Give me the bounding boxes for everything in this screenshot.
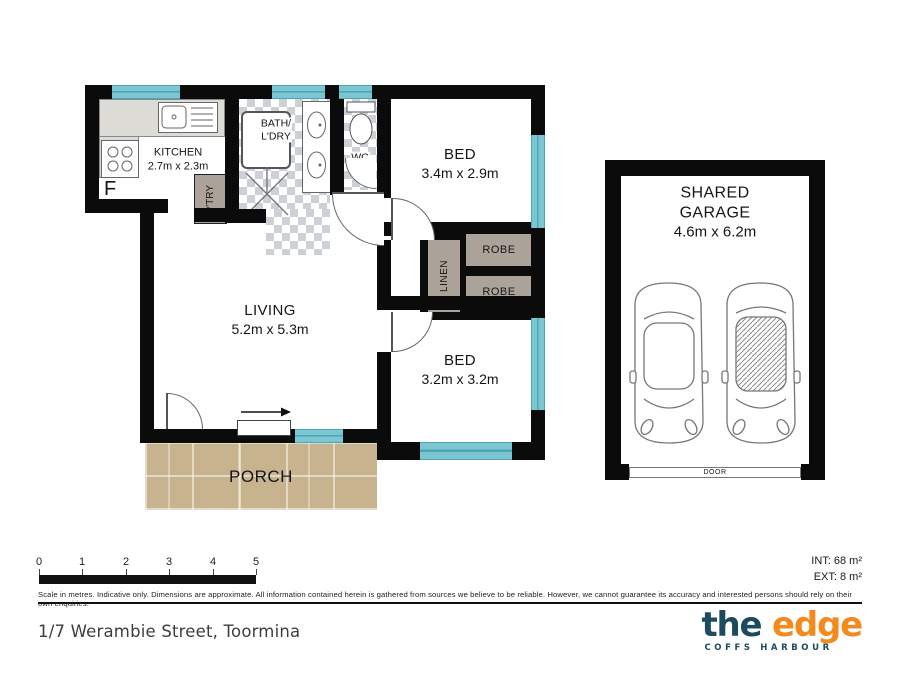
wall-segment <box>85 85 99 213</box>
window-glass <box>420 442 512 460</box>
scale-tick-label: 3 <box>166 556 172 568</box>
scale-tick-mark <box>256 569 257 575</box>
entry-door-leaf <box>166 393 168 429</box>
agency-logo: the edge COFFS HARBOUR <box>701 608 862 653</box>
wall-segment <box>330 85 344 195</box>
area-summary: INT: 68 m² EXT: 8 m² <box>811 554 862 586</box>
wall-segment <box>605 160 825 176</box>
bed1-door-swing <box>393 198 435 240</box>
wall-segment <box>377 352 391 443</box>
robe-cupboard: ROBE <box>466 234 532 266</box>
wall-segment <box>225 209 266 223</box>
cars-top-view-icon <box>627 277 805 449</box>
window-glass <box>272 85 325 99</box>
entry-door-swing <box>167 393 203 429</box>
garage-door: DOOR <box>629 467 801 478</box>
linen-label: LINEN <box>439 260 450 292</box>
wall-segment <box>801 464 825 480</box>
floor-plan-page: F P'TRY BATH/ L'DRY WC <box>0 0 900 675</box>
wall-segment <box>85 199 168 213</box>
kitchen-label: KITCHEN 2.7m x 2.3m <box>148 146 209 174</box>
wall-segment <box>225 85 239 222</box>
porch-area: PORCH <box>145 443 377 510</box>
scale-tick-label: 5 <box>253 556 259 568</box>
logo-word-edge: edge <box>772 605 862 645</box>
bed2-label: BED 3.2m x 3.2m <box>421 352 498 388</box>
bed2-door-leaf <box>391 312 393 352</box>
scale-tick-label: 1 <box>79 556 85 568</box>
agency-logo-wordmark: the edge <box>701 608 862 642</box>
sink-icon <box>158 102 218 133</box>
sliding-door-panel <box>237 420 291 436</box>
bed1-label: BED 3.4m x 2.9m <box>421 146 498 182</box>
scale-bar-fill <box>39 575 256 584</box>
wall-segment <box>140 199 154 443</box>
living-label: LIVING 5.2m x 5.3m <box>231 302 308 338</box>
wall-segment <box>377 240 391 310</box>
fridge-label: F <box>104 178 116 201</box>
porch-label: PORCH <box>229 467 293 487</box>
wall-segment <box>605 160 621 480</box>
wall-segment <box>605 464 629 480</box>
window-glass <box>531 135 545 228</box>
toilet-icon <box>346 101 376 147</box>
robe-label: ROBE <box>482 244 515 256</box>
wall-segment <box>377 85 391 198</box>
bed2-door-swing <box>393 312 433 352</box>
window-glass <box>339 85 372 99</box>
sliding-door-arrow-icon <box>239 406 291 418</box>
garage-label: SHARED GARAGE 4.6m x 6.2m <box>674 184 757 243</box>
scale-tick-label: 0 <box>36 556 42 568</box>
hall-door-leaf <box>332 192 384 194</box>
wall-segment <box>391 296 545 310</box>
hall-door-swing <box>332 194 384 246</box>
window-glass <box>112 85 180 99</box>
window-glass <box>531 318 545 410</box>
scale-tick-label: 2 <box>123 556 129 568</box>
internal-area: INT: 68 m² <box>811 554 862 570</box>
wall-segment <box>809 160 825 480</box>
divider-line <box>38 602 862 604</box>
property-address: 1/7 Werambie Street, Toormina <box>38 622 300 641</box>
bed1-door-leaf <box>391 198 393 240</box>
window-glass <box>295 429 343 443</box>
stove-icon <box>101 140 139 178</box>
bath-label: BATH/ L'DRY <box>260 117 292 142</box>
logo-word-the: the <box>701 605 761 645</box>
scale-tick-label: 4 <box>210 556 216 568</box>
vanity-basins-icon <box>302 101 331 193</box>
external-area: EXT: 8 m² <box>811 570 862 586</box>
garage-door-label: DOOR <box>704 469 727 476</box>
